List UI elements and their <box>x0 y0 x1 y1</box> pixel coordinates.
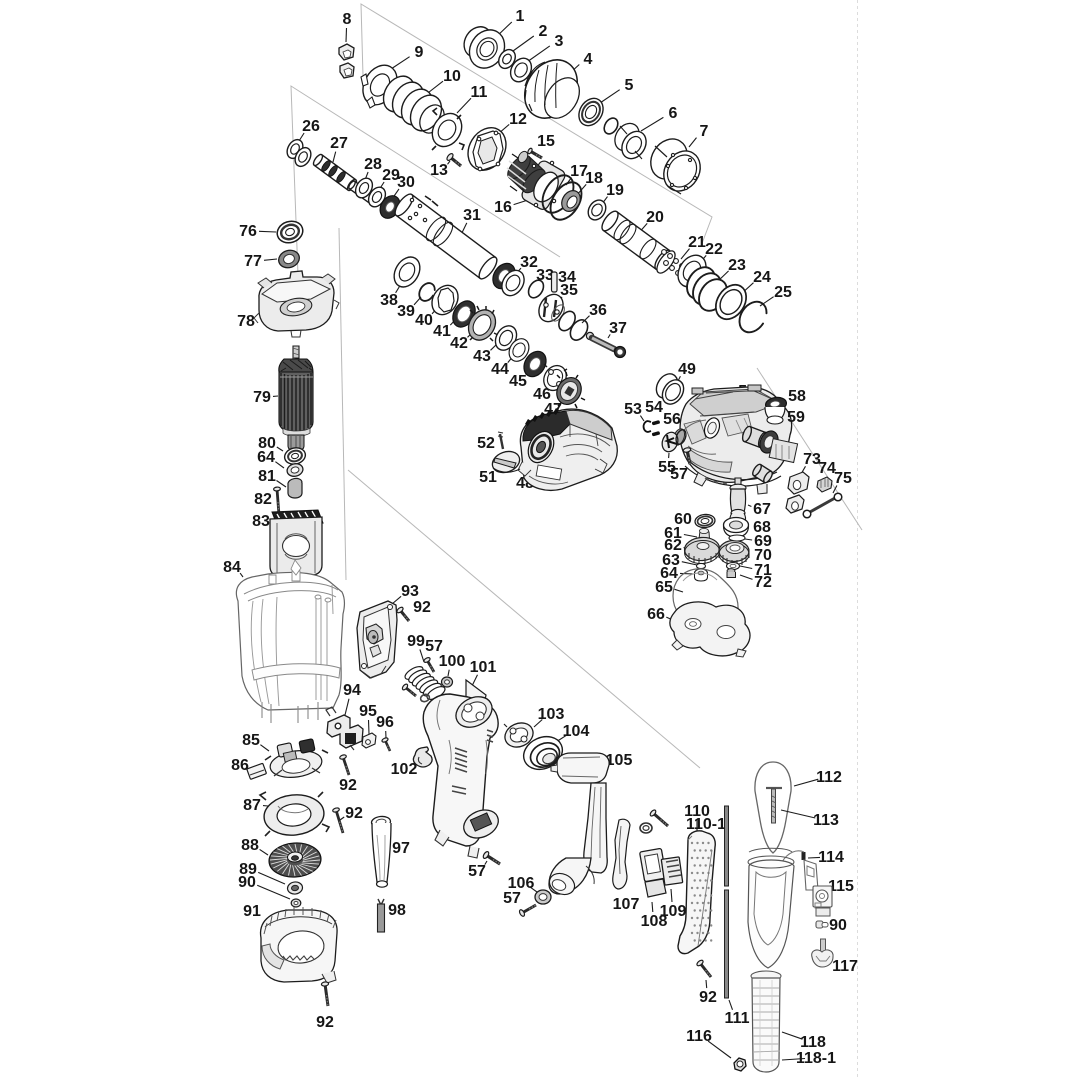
svg-text:79: 79 <box>253 389 271 406</box>
svg-text:40: 40 <box>415 312 433 329</box>
svg-text:57: 57 <box>468 863 486 880</box>
svg-text:35: 35 <box>560 282 578 299</box>
svg-text:21: 21 <box>688 234 706 251</box>
svg-text:7: 7 <box>700 123 709 140</box>
svg-text:6: 6 <box>669 105 678 122</box>
svg-text:9: 9 <box>415 44 424 61</box>
svg-text:22: 22 <box>705 241 723 258</box>
svg-text:72: 72 <box>754 574 772 591</box>
svg-text:97: 97 <box>392 840 410 857</box>
svg-text:105: 105 <box>606 752 633 769</box>
svg-text:112: 112 <box>816 769 842 786</box>
svg-text:39: 39 <box>397 303 415 320</box>
svg-text:30: 30 <box>397 174 415 191</box>
svg-text:88: 88 <box>241 837 259 854</box>
svg-text:16: 16 <box>494 199 512 216</box>
svg-text:10: 10 <box>443 68 461 85</box>
svg-text:114: 114 <box>818 849 844 866</box>
svg-text:57: 57 <box>503 890 521 907</box>
svg-text:19: 19 <box>606 182 624 199</box>
svg-text:98: 98 <box>388 902 406 919</box>
svg-text:1: 1 <box>516 8 525 25</box>
svg-text:57: 57 <box>670 466 688 483</box>
svg-text:95: 95 <box>359 703 377 720</box>
svg-text:94: 94 <box>343 682 361 699</box>
svg-text:92: 92 <box>413 599 431 616</box>
svg-text:109: 109 <box>660 903 687 920</box>
svg-text:110: 110 <box>684 803 710 820</box>
svg-text:20: 20 <box>646 209 664 226</box>
svg-text:81: 81 <box>258 468 276 485</box>
svg-text:41: 41 <box>433 323 451 340</box>
svg-text:83: 83 <box>252 513 270 530</box>
svg-text:87: 87 <box>243 797 261 814</box>
svg-text:13: 13 <box>430 162 448 179</box>
svg-text:75: 75 <box>834 470 852 487</box>
svg-text:37: 37 <box>609 320 627 337</box>
svg-text:90: 90 <box>238 874 256 891</box>
svg-text:92: 92 <box>699 989 717 1006</box>
svg-text:104: 104 <box>563 723 590 740</box>
svg-text:3: 3 <box>555 33 564 50</box>
svg-text:99: 99 <box>407 633 425 650</box>
svg-text:86: 86 <box>231 757 249 774</box>
svg-text:92: 92 <box>339 777 357 794</box>
svg-text:24: 24 <box>753 269 771 286</box>
svg-text:67: 67 <box>753 501 771 518</box>
svg-text:58: 58 <box>788 388 806 405</box>
svg-text:12: 12 <box>509 111 527 128</box>
svg-text:76: 76 <box>239 223 257 240</box>
svg-text:2: 2 <box>539 23 548 40</box>
svg-text:53: 53 <box>624 401 642 418</box>
svg-text:90: 90 <box>829 917 847 934</box>
svg-text:84: 84 <box>223 559 241 576</box>
svg-text:91: 91 <box>243 903 261 920</box>
svg-text:69: 69 <box>754 533 772 550</box>
svg-text:31: 31 <box>463 207 481 224</box>
svg-text:27: 27 <box>330 135 348 152</box>
svg-text:111: 111 <box>725 1010 750 1027</box>
svg-text:36: 36 <box>589 302 607 319</box>
svg-text:15: 15 <box>537 133 555 150</box>
svg-text:44: 44 <box>491 361 509 378</box>
svg-text:117: 117 <box>832 958 858 975</box>
svg-text:100: 100 <box>439 653 466 670</box>
svg-text:96: 96 <box>376 714 394 731</box>
svg-text:23: 23 <box>728 257 746 274</box>
svg-text:85: 85 <box>242 732 260 749</box>
svg-text:42: 42 <box>450 335 468 352</box>
svg-text:64: 64 <box>257 449 275 466</box>
svg-text:26: 26 <box>302 118 320 135</box>
svg-text:28: 28 <box>364 156 382 173</box>
svg-text:93: 93 <box>401 583 419 600</box>
svg-text:45: 45 <box>509 373 527 390</box>
svg-text:107: 107 <box>613 896 640 913</box>
svg-text:116: 116 <box>686 1028 712 1045</box>
svg-text:101: 101 <box>470 659 497 676</box>
svg-text:4: 4 <box>584 51 593 68</box>
svg-text:18: 18 <box>585 170 603 187</box>
svg-text:113: 113 <box>813 812 839 829</box>
svg-text:54: 54 <box>645 399 663 416</box>
svg-text:43: 43 <box>473 348 491 365</box>
svg-text:11: 11 <box>471 84 488 101</box>
svg-text:65: 65 <box>655 579 673 596</box>
svg-text:51: 51 <box>479 469 497 486</box>
svg-text:92: 92 <box>345 805 363 822</box>
svg-text:52: 52 <box>477 435 495 452</box>
svg-text:5: 5 <box>625 77 634 94</box>
svg-text:8: 8 <box>343 11 352 28</box>
svg-text:56: 56 <box>663 411 681 428</box>
svg-text:49: 49 <box>678 361 696 378</box>
svg-text:92: 92 <box>316 1014 334 1031</box>
svg-text:25: 25 <box>774 284 792 301</box>
svg-text:78: 78 <box>237 313 255 330</box>
svg-text:38: 38 <box>380 292 398 309</box>
svg-text:59: 59 <box>787 409 805 426</box>
svg-text:66: 66 <box>647 606 665 623</box>
svg-text:77: 77 <box>244 253 262 270</box>
svg-text:82: 82 <box>254 491 272 508</box>
svg-text:118: 118 <box>800 1034 826 1051</box>
